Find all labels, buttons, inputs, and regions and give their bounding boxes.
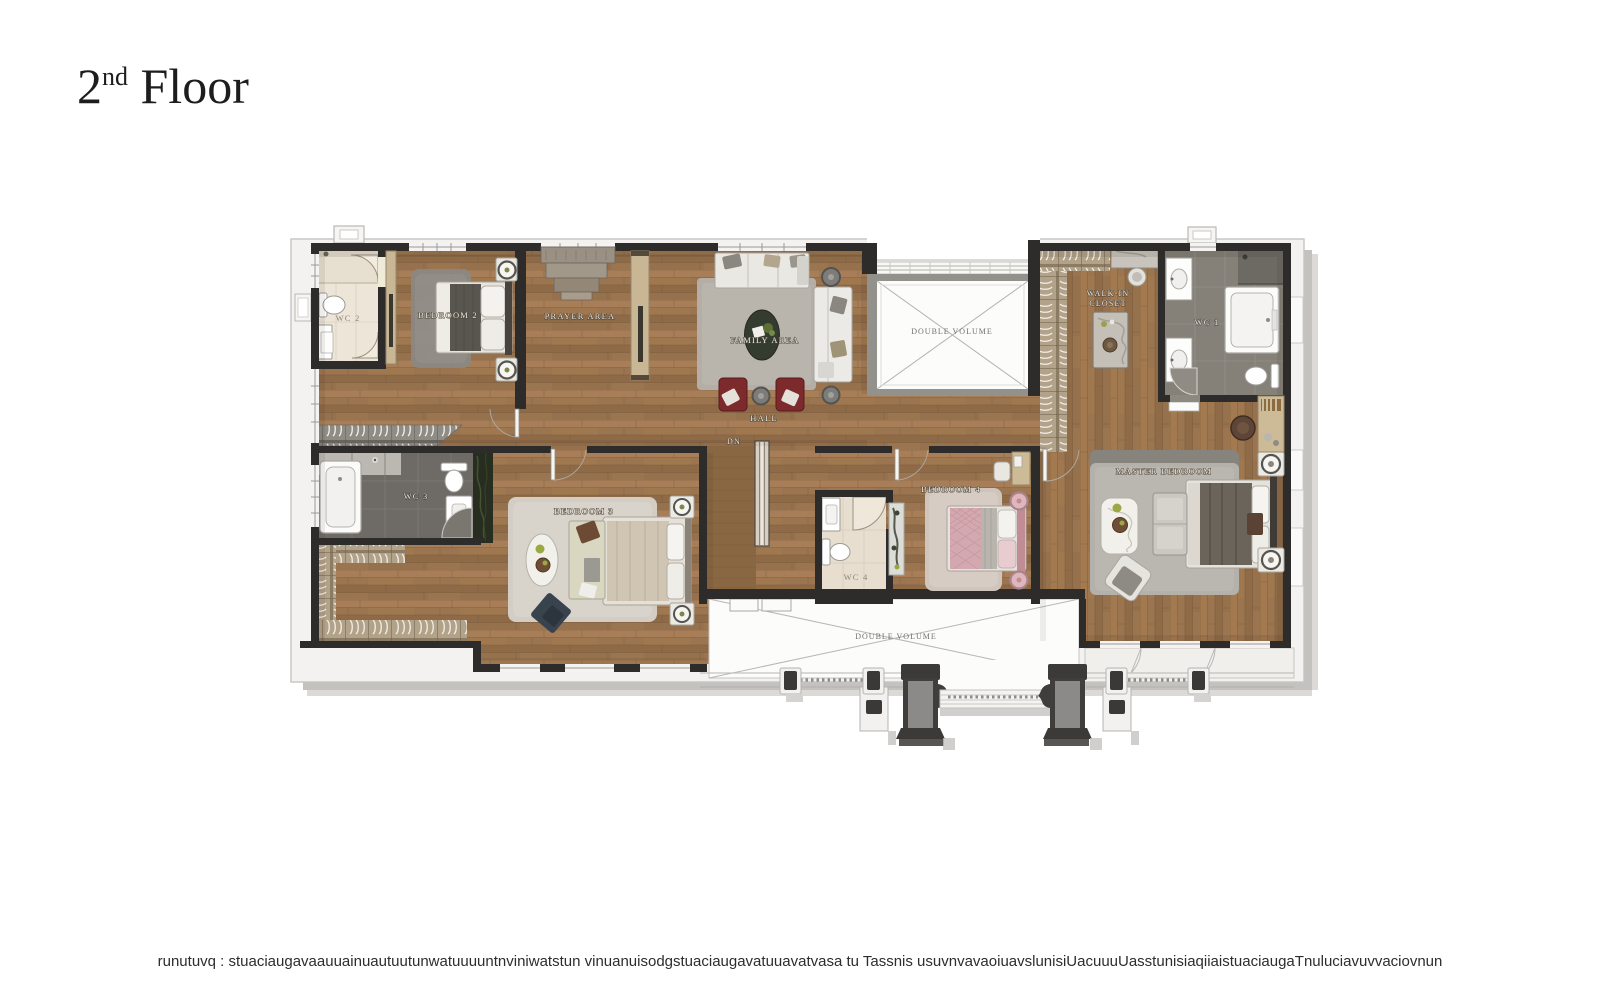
- svg-text:WC 2: WC 2: [336, 313, 361, 323]
- svg-text:DN: DN: [727, 437, 741, 446]
- svg-text:DOUBLE VOLUME: DOUBLE VOLUME: [911, 327, 993, 336]
- svg-text:PRAYER AREA: PRAYER AREA: [545, 311, 616, 321]
- svg-text:BEDROOM 2: BEDROOM 2: [418, 310, 478, 320]
- svg-text:WALK-IN: WALK-IN: [1087, 289, 1130, 298]
- svg-text:CLOSET: CLOSET: [1089, 299, 1126, 308]
- svg-text:MASTER BEDROOM: MASTER BEDROOM: [1116, 466, 1212, 476]
- svg-text:DOUBLE VOLUME: DOUBLE VOLUME: [855, 632, 937, 641]
- svg-text:BEDROOM 3: BEDROOM 3: [554, 506, 614, 516]
- svg-text:HALL: HALL: [750, 413, 777, 423]
- svg-text:FAMILY AREA: FAMILY AREA: [731, 335, 800, 345]
- svg-text:WC 1: WC 1: [1195, 317, 1220, 327]
- svg-text:BEDROOM 4: BEDROOM 4: [921, 484, 981, 494]
- svg-text:WC 3: WC 3: [404, 491, 429, 501]
- svg-text:WC 4: WC 4: [844, 572, 869, 582]
